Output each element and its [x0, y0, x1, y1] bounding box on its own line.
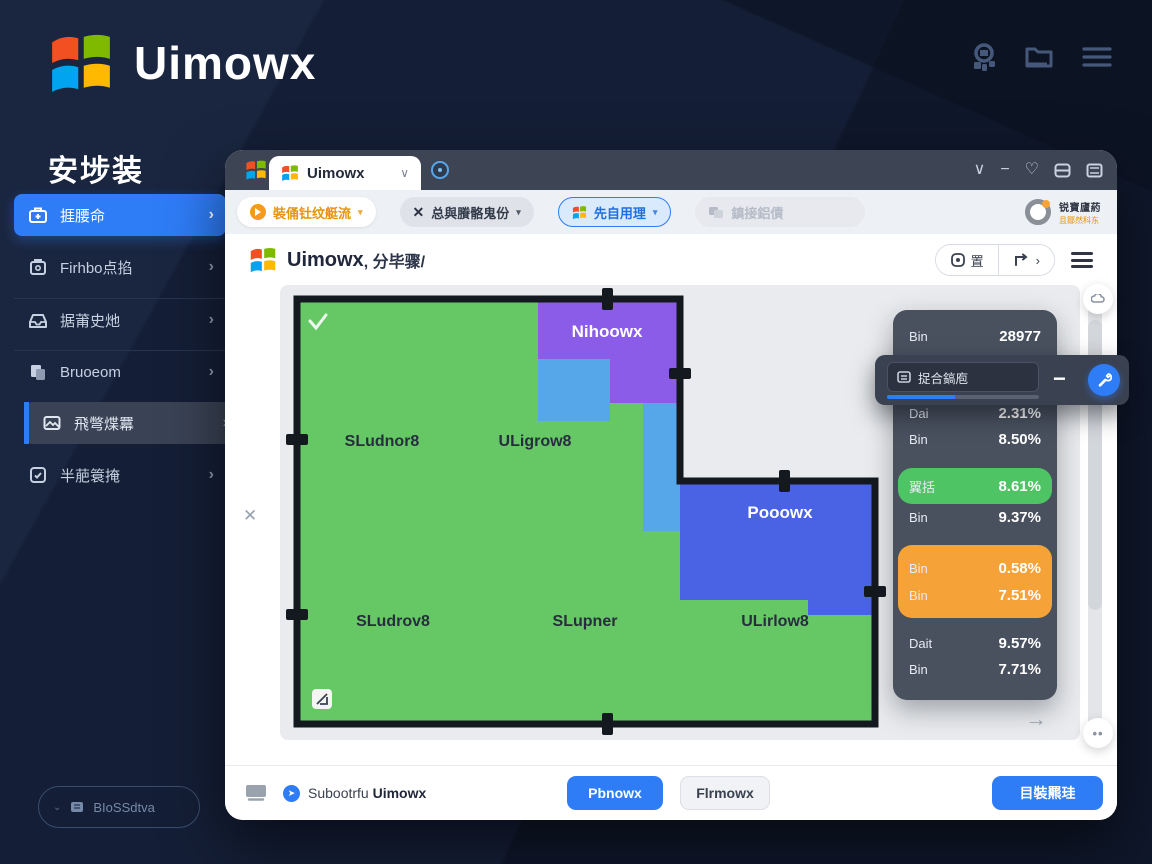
stat-value: 7.51% — [998, 587, 1041, 604]
account-logo-icon — [1025, 199, 1051, 225]
more-menu-icon[interactable] — [1071, 252, 1093, 268]
document-titlebar: Uimowx , 分毕骤/ 置 › — [225, 234, 1117, 286]
tab-label: Uimowx — [307, 165, 365, 182]
disabled-tool-button: 鎮接鋁債 — [695, 197, 865, 227]
brand-name: Uimowx — [134, 36, 316, 90]
stat-label: Dait — [909, 636, 932, 651]
auto-partition-button[interactable]: 目裝羆珪 — [992, 776, 1103, 810]
cloud-icon — [1091, 294, 1105, 304]
decrease-button[interactable]: − — [1053, 368, 1066, 390]
x-icon: ✕ — [413, 204, 425, 221]
layers-icon — [708, 205, 724, 219]
chevron-right-icon: › — [209, 466, 214, 484]
vault-icon — [28, 257, 48, 277]
stat-row: Bin 7.51% — [909, 582, 1041, 608]
stat-row[interactable]: Bin 8.50% — [909, 426, 1041, 452]
apply-button[interactable] — [1088, 364, 1120, 396]
account-line1: 锐寶廬葯 — [1059, 199, 1101, 214]
float-top-button[interactable] — [1083, 284, 1113, 314]
stat-row: 翼括 8.61% — [909, 473, 1041, 499]
main-window: Uimowx ∨ ∨ − ♡ 裝俑钍纹艇流 ▾ ✕ 总與賸骼鬼份 ▾ — [225, 150, 1117, 820]
status-text: Subootrfu Uimowx — [308, 785, 426, 801]
mode-label: 总與賸骼鬼份 — [431, 203, 509, 222]
stat-row[interactable]: Bin 7.71% — [909, 656, 1041, 682]
adjust-popup: 捉合鎬庖 − — [875, 355, 1129, 405]
chevron-down-icon[interactable]: ∨ — [400, 166, 409, 180]
console-icon[interactable] — [245, 784, 267, 802]
favorite-icon[interactable]: ♡ — [1025, 162, 1039, 178]
sidebar-item-backup[interactable]: Firhbo点掐 › — [14, 246, 226, 288]
windows-logo-icon — [249, 246, 277, 274]
mode-button[interactable]: ✕ 总與賸骼鬼份 ▾ — [400, 197, 534, 227]
settings-icon[interactable] — [970, 42, 998, 72]
windows-logo-icon — [572, 205, 587, 220]
window-toolbar: 裝俑钍纹艇流 ▾ ✕ 总與賸骼鬼份 ▾ 先自用理 ▾ 鎮接鋁債 锐寶廬葯 且鄒然… — [225, 190, 1117, 234]
stat-row[interactable]: Bin 9.37% — [909, 504, 1041, 530]
chevron-right-icon: › — [209, 258, 214, 276]
stat-value: 7.71% — [998, 661, 1041, 678]
handle-blue-top[interactable] — [779, 470, 790, 492]
region-label-purple: Nihoowx — [572, 322, 643, 341]
wrench-icon — [1096, 372, 1112, 388]
view-controls: 置 › — [935, 244, 1055, 276]
stat-value: 28977 — [999, 328, 1041, 345]
page-title-suffix: , 分毕骤/ — [364, 248, 425, 272]
copy-icon — [28, 362, 48, 382]
chevron-right-icon: › — [209, 311, 214, 329]
sidebar-item-partition[interactable]: 飛彆煠羃 › — [28, 402, 240, 444]
handle-purple-right[interactable] — [669, 368, 691, 379]
chevron-down-icon[interactable]: ∨ — [974, 162, 986, 178]
status-prefix: Subootrfu — [308, 785, 369, 801]
sidebar-item-resources[interactable]: 半萉簑掩 › — [14, 454, 226, 496]
tab-uimowx[interactable]: Uimowx ∨ — [269, 156, 421, 190]
sidebar-title: 安埗装 — [48, 146, 144, 190]
stat-label: Bin — [909, 329, 928, 344]
map-label-5: ULirlow8 — [741, 613, 809, 630]
toolbox-icon — [28, 205, 48, 225]
sidebar-item-reinstall[interactable]: 捱腰命 › — [14, 194, 226, 236]
close-icon[interactable] — [1086, 163, 1103, 178]
cancel-button[interactable]: Flrmowx — [680, 776, 770, 810]
caret-down-icon: ▾ — [516, 207, 521, 218]
stat-label: Bin — [909, 510, 928, 525]
popup-input-field[interactable]: 捉合鎬庖 — [887, 362, 1039, 392]
play-circle-icon — [250, 204, 266, 220]
zoom-reset-button[interactable]: 置 — [936, 245, 998, 275]
stat-row[interactable]: Dait 9.57% — [909, 630, 1041, 656]
maximize-icon[interactable] — [1054, 163, 1071, 178]
stat-row[interactable]: Bin 28977 — [909, 323, 1041, 349]
stat-value: 8.61% — [998, 478, 1041, 495]
map-label-3: SLudrov8 — [356, 613, 430, 630]
minimize-icon[interactable]: − — [1000, 162, 1009, 178]
stat-label: Bin — [909, 561, 928, 576]
window-footer: ➤ Subootrfu Uimowx Pbnowx Flrmowx 目裝羆珪 — [225, 765, 1117, 820]
target-icon — [950, 252, 966, 268]
stat-label: 翼括 — [909, 477, 935, 496]
partition-region-lightblue-b[interactable] — [643, 403, 680, 531]
sidebar-item-label: Bruoeom — [60, 364, 197, 381]
stat-label: Bin — [909, 662, 928, 677]
sidebar-item-history[interactable]: 据莆史灺 › — [14, 298, 226, 340]
shield-check-icon — [28, 465, 48, 485]
more-options-button[interactable]: •• — [1083, 718, 1113, 748]
map-label-1: SLudnor8 — [345, 433, 420, 450]
handle-left-upper[interactable] — [286, 434, 308, 445]
stat-value: 8.50% — [998, 431, 1041, 448]
redo-button[interactable]: › — [998, 245, 1054, 275]
redo-arrow-icon — [1013, 253, 1031, 267]
chevron-right-icon: › — [209, 206, 214, 224]
chevron-small-icon: ⌄ — [53, 802, 61, 813]
handle-top[interactable] — [602, 288, 613, 310]
bios-setup-button[interactable]: ⌄ BIoSSdtva — [38, 786, 200, 828]
stat-row: Bin 0.58% — [909, 555, 1041, 581]
filter-label: 裝俑钍纹艇流 — [273, 203, 351, 222]
page-top-actions — [970, 42, 1112, 72]
sidebar-item-label: 飛彆煠羃 — [74, 413, 211, 434]
notes-icon — [897, 371, 911, 383]
zoom-reset-label: 置 — [971, 251, 984, 270]
sidebar-item-label: 半萉簑掩 — [60, 465, 197, 486]
chevron-right-icon: › — [209, 363, 214, 381]
window-controls: ∨ − ♡ — [974, 150, 1103, 190]
account-badge[interactable]: 锐寶廬葯 且鄒然科东 — [1025, 199, 1105, 226]
disabled-tool-label: 鎮接鋁債 — [731, 203, 783, 222]
stat-label: Bin — [909, 588, 928, 603]
caret-down-icon: ▾ — [653, 207, 658, 218]
handle-bottom[interactable] — [602, 713, 613, 735]
active-tool-label: 先自用理 — [594, 203, 646, 222]
status-icon: ➤ — [283, 785, 300, 802]
handle-left-lower[interactable] — [286, 609, 308, 620]
archive-icon — [28, 310, 48, 330]
popup-field-text: 捉合鎬庖 — [918, 368, 968, 387]
collapse-icon[interactable]: ✕ — [243, 506, 257, 526]
active-tool-button[interactable]: 先自用理 ▾ — [558, 197, 672, 227]
status-app: Uimowx — [373, 785, 427, 801]
sidebar-item-label: 捱腰命 — [60, 205, 197, 226]
popup-progress-bar — [887, 395, 1039, 399]
stat-label: Dai — [909, 406, 929, 421]
handle-right[interactable] — [864, 586, 886, 597]
filter-button[interactable]: 裝俑钍纹艇流 ▾ — [237, 197, 376, 227]
windows-logo-icon — [245, 159, 267, 181]
account-line2: 且鄒然科东 — [1059, 215, 1101, 226]
menu-icon[interactable] — [1082, 45, 1112, 69]
windows-logo-icon — [44, 30, 118, 96]
image-icon — [42, 413, 62, 433]
map-label-4: SLupner — [553, 613, 618, 630]
folder-icon[interactable] — [1024, 43, 1056, 71]
stat-value: 9.37% — [998, 509, 1041, 526]
partition-region-lightblue-a[interactable] — [538, 359, 610, 421]
page-title: Uimowx — [287, 249, 364, 272]
bios-setup-label: BIoSSdtva — [93, 800, 154, 815]
stat-value: 2.31% — [998, 405, 1041, 422]
sidebar-item-label: Firhbo点掐 — [60, 257, 197, 278]
sidebar-item-files[interactable]: Bruoeom › — [14, 350, 226, 392]
arrow-right-icon[interactable]: → — [1025, 706, 1047, 732]
stat-value: 9.57% — [998, 635, 1041, 652]
chip-icon — [69, 800, 85, 814]
stat-label: Bin — [909, 432, 928, 447]
app-brand: Uimowx — [44, 30, 316, 96]
caret-down-icon: ▾ — [358, 207, 363, 218]
confirm-button[interactable]: Pbnowx — [567, 776, 663, 810]
stat-value: 0.58% — [998, 560, 1041, 577]
windows-logo-icon — [281, 164, 299, 182]
region-label-blue: Pooowx — [747, 503, 813, 522]
new-tab-button[interactable] — [431, 161, 449, 179]
popup-progress-fill — [887, 395, 955, 399]
sidebar-nav: 捱腰命 › Firhbo点掐 › 据莆史灺 › Bruoeom › 飛彆煠羃 — [14, 194, 226, 506]
stat-row-highlight-orange[interactable]: Bin 0.58% Bin 7.51% — [898, 545, 1052, 618]
partition-region-blue[interactable] — [680, 481, 875, 615]
stat-row-highlight-green[interactable]: 翼括 8.61% — [898, 468, 1052, 504]
sidebar-item-label: 据莆史灺 — [60, 310, 197, 331]
map-label-2: ULigrow8 — [499, 433, 572, 450]
window-tabbar: Uimowx ∨ ∨ − ♡ — [225, 150, 1117, 190]
corner-badge-icon — [312, 689, 332, 709]
chevron-right-icon: › — [1036, 253, 1040, 268]
